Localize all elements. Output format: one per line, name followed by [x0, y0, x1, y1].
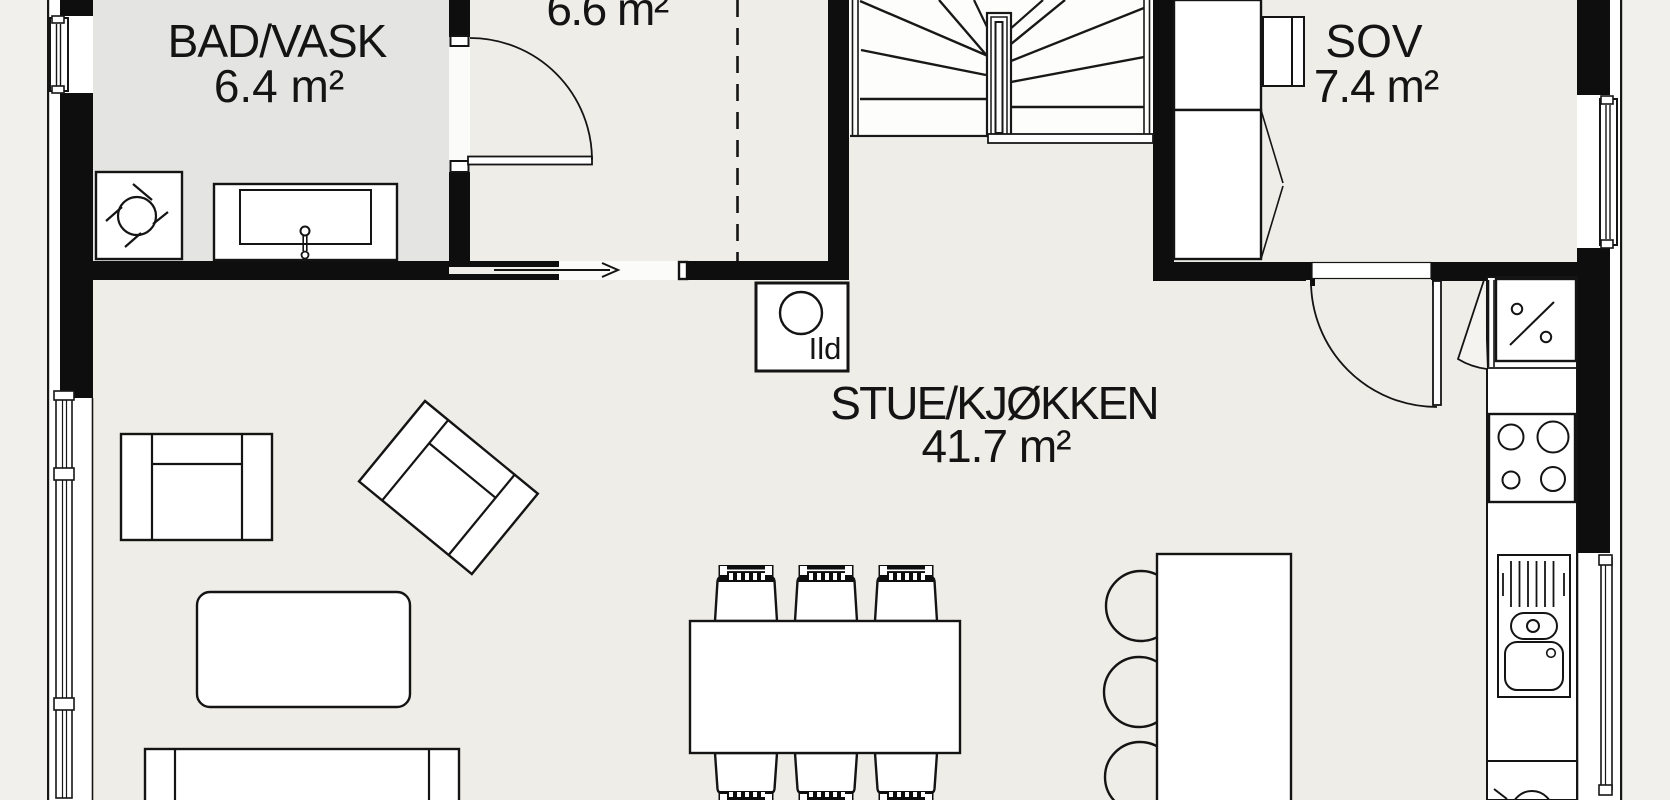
svg-text:Ild: Ild — [809, 331, 842, 366]
svg-text:6.4 m²: 6.4 m² — [214, 60, 344, 112]
svg-text:41.7 m²: 41.7 m² — [922, 420, 1072, 472]
svg-text:7.4 m²: 7.4 m² — [1314, 60, 1439, 112]
svg-text:6.6 m²: 6.6 m² — [546, 0, 669, 35]
